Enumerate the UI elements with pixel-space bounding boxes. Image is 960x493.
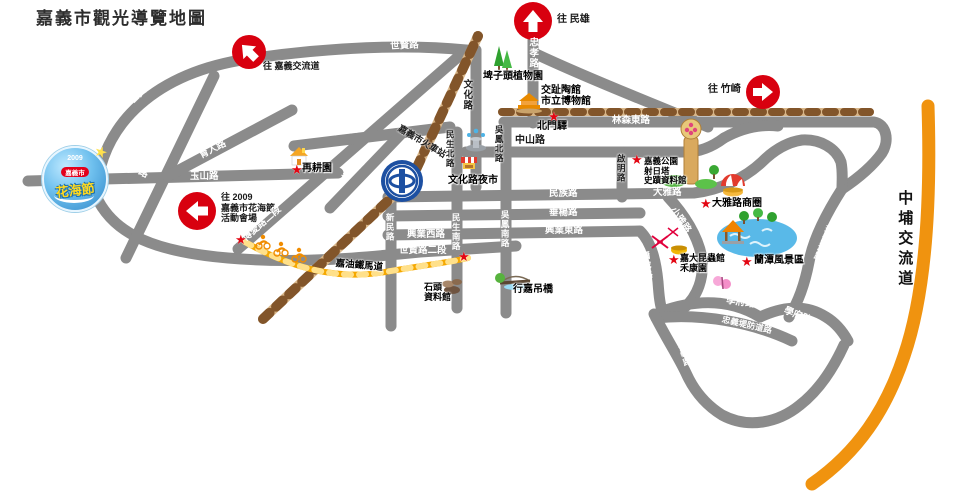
poi-label-insect-line2: 禾康園 xyxy=(680,264,725,274)
page-title: 嘉義市觀光導覽地圖 xyxy=(36,10,207,28)
train-station-logo-icon xyxy=(381,160,423,202)
star-icon: ★ xyxy=(548,110,560,123)
festival-logo-city: 嘉義市 xyxy=(61,167,89,177)
arrow-badge-chiayi-interchange xyxy=(232,35,266,69)
poi-label-pizitou: 埤子頭植物園 xyxy=(483,72,543,83)
road-label-wufeng-north: 吳鳳北路 xyxy=(494,125,503,163)
tourist-map: 嘉義市觀光導覽地圖 往 嘉義交流道 往 民雄 往 竹崎 往 2009 嘉義市花海… xyxy=(0,0,960,493)
arrow-label-zhuqi: 往 竹崎 xyxy=(708,85,741,96)
road-label-xinmin: 新民路 xyxy=(385,213,394,242)
star-icon: ★ xyxy=(235,233,247,246)
poi-label-stone-museum: 石頭 資料館 xyxy=(424,283,451,302)
lantan-lake-icon xyxy=(717,208,797,257)
road-label-qiming: 啟明路 xyxy=(616,154,625,183)
star-icon: ★ xyxy=(631,153,643,166)
star-icon: ★ xyxy=(458,250,470,263)
road-chuiyang xyxy=(388,213,640,216)
dragonfly-icon xyxy=(652,228,678,248)
poi-label-daya-biz: 大雅路商圈 xyxy=(712,199,762,210)
poi-label-insect-museum: 嘉大昆蟲館 禾康園 xyxy=(680,254,725,273)
arrow-badge-minxiong xyxy=(514,2,552,40)
road-label-zhongxiao: 忠孝路 xyxy=(527,37,537,69)
star-icon: ★ xyxy=(668,253,680,266)
highway-label-zhongpu: 中埔交流道 xyxy=(896,190,912,290)
star-icon: ★ xyxy=(700,197,712,210)
road-label-yushan: 玉山路 xyxy=(190,172,219,182)
festival-logo-wave xyxy=(54,188,94,203)
road-label-xingye-east: 興業東路 xyxy=(545,226,583,236)
poi-label-lantan: 蘭潭風景區 xyxy=(754,256,804,267)
road-label-linsen-east: 林森東路 xyxy=(612,116,650,126)
night-market-stall-icon xyxy=(461,157,477,169)
poi-label-zaigeng: 再耕園 xyxy=(302,164,332,175)
road-label-wenhua: 文化路 xyxy=(461,79,471,111)
poi-label-chiayi-park: 嘉義公園 射日塔 史蹟資料館 xyxy=(644,157,687,186)
road-label-shixian-top: 世賢路 xyxy=(390,41,419,53)
poi-label-night-market: 文化路夜市 xyxy=(448,176,498,187)
road-label-wufeng-south: 吳鳳南路 xyxy=(500,210,509,248)
road-label-shixian-2: 世賢路二段 xyxy=(399,246,447,256)
road-label-chuiyang: 垂楊路 xyxy=(549,208,578,218)
arrow-label-flower-festival-line1: 往 2009 xyxy=(221,192,275,203)
arrow-badge-flower-festival xyxy=(178,192,216,230)
star-icon: ★ xyxy=(741,255,753,268)
poi-label-stone-line2: 資料館 xyxy=(424,293,451,303)
arrow-label-minxiong: 往 民雄 xyxy=(557,15,590,26)
arrow-badge-zhuqi xyxy=(746,75,780,109)
poi-label-koji-line2: 市立博物館 xyxy=(541,97,591,108)
butterfly-icon xyxy=(713,276,731,289)
road-label-minsheng-south: 民生南路 xyxy=(451,213,460,251)
fountain-icon xyxy=(466,129,486,152)
road-label-daya: 大雅路 xyxy=(653,188,682,198)
road-label-xingye-west: 興業西路 xyxy=(407,230,445,240)
road-label-minzu: 民族路 xyxy=(549,189,578,199)
road-label-minsheng-north: 民生北路 xyxy=(445,130,454,168)
road-label-zhongshan: 中山路 xyxy=(515,136,545,147)
star-icon: ★ xyxy=(291,163,303,176)
poi-label-koji: 交趾陶館 市立博物館 xyxy=(541,86,591,108)
poi-label-park-line3: 史蹟資料館 xyxy=(644,176,687,186)
arrow-label-chiayi-interchange: 往 嘉義交流道 xyxy=(263,62,320,72)
poi-label-xingjia-bridge: 行嘉吊橋 xyxy=(513,285,553,296)
botanical-garden-trees-icon xyxy=(494,46,512,71)
